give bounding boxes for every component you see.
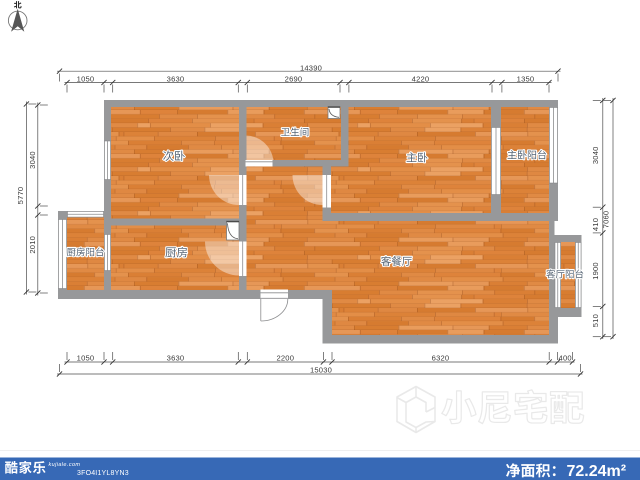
svg-text:7060: 7060	[602, 211, 611, 229]
svg-text:5770: 5770	[16, 187, 25, 205]
svg-text:1350: 1350	[517, 74, 535, 83]
svg-text:3630: 3630	[167, 353, 185, 362]
svg-text:3040: 3040	[28, 151, 37, 169]
svg-text:15030: 15030	[310, 366, 332, 375]
svg-text:2010: 2010	[28, 236, 37, 254]
svg-text:3630: 3630	[167, 74, 185, 83]
svg-text:72.24m²: 72.24m²	[567, 463, 627, 480]
svg-text:3FO4I1YL8YN3: 3FO4I1YL8YN3	[77, 470, 129, 477]
svg-text:4220: 4220	[412, 74, 430, 83]
svg-text:400: 400	[559, 353, 572, 362]
svg-text:3040: 3040	[591, 146, 600, 164]
svg-text:kujiale.com: kujiale.com	[49, 462, 81, 468]
svg-text:2690: 2690	[285, 74, 303, 83]
svg-text:6320: 6320	[432, 353, 450, 362]
svg-text:1050: 1050	[77, 74, 95, 83]
svg-text:14390: 14390	[300, 64, 322, 73]
svg-text:410: 410	[591, 218, 600, 231]
svg-text:1900: 1900	[591, 262, 600, 280]
svg-text:2200: 2200	[276, 353, 294, 362]
svg-text:510: 510	[591, 314, 600, 327]
svg-text:1050: 1050	[77, 353, 95, 362]
